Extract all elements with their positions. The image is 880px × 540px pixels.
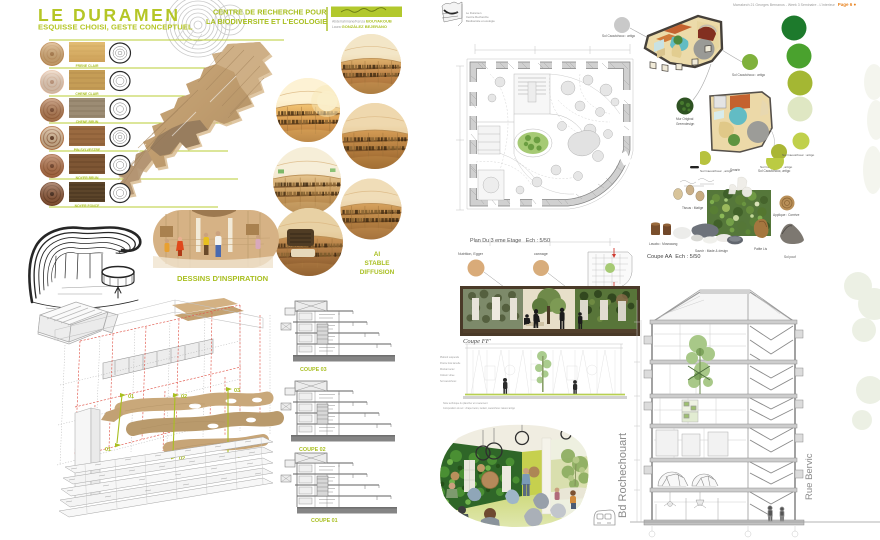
svg-text:Abderrahmane/Kenza BOUYAKOUB: Abderrahmane/Kenza BOUYAKOUB bbox=[332, 19, 392, 24]
svg-text:PIN SYLVESTRE: PIN SYLVESTRE bbox=[74, 148, 101, 152]
svg-text:01: 01 bbox=[128, 394, 134, 400]
svg-text:DESSINS D'INSPIRATION: DESSINS D'INSPIRATION bbox=[177, 274, 268, 283]
svg-text:03: 03 bbox=[234, 388, 240, 394]
svg-text:cannage: cannage bbox=[534, 252, 548, 256]
svg-text:CHENE BRUN: CHENE BRUN bbox=[76, 120, 99, 124]
svg-text:Sol Caoutchouc : artigo: Sol Caoutchouc : artigo bbox=[732, 73, 765, 77]
svg-text:Plan Du 3 eme Etage Ech : 5/: Plan Du 3 eme Etage Ech : 5/50 bbox=[470, 238, 550, 244]
svg-text:LA BIODIVERSITE ET L'ECOLOGIE: LA BIODIVERSITE ET L'ECOLOGIE bbox=[206, 17, 327, 26]
svg-text:Poutre bois lamelle: Poutre bois lamelle bbox=[440, 362, 461, 365]
svg-text:Montant acier: Montant acier bbox=[440, 368, 455, 371]
svg-text:Nutrition, Egger: Nutrition, Egger bbox=[458, 252, 484, 256]
svg-text:STABLE: STABLE bbox=[364, 260, 390, 267]
svg-text:Sol caoutchouc: Sol caoutchouc bbox=[440, 380, 457, 383]
svg-text:Laura GONZÁLEZ BEJERANO: Laura GONZÁLEZ BEJERANO bbox=[332, 24, 387, 29]
svg-text:FRENE CLAIR: FRENE CLAIR bbox=[76, 64, 99, 68]
svg-text:Sol pouf: Sol pouf bbox=[784, 255, 796, 259]
svg-text:Patite Lis: Patite Lis bbox=[754, 247, 768, 251]
svg-text:Composition du sol : chape bet: Composition du sol : chape beton, isolan… bbox=[443, 407, 516, 410]
svg-text:Applique : Corrèze: Applique : Corrèze bbox=[773, 213, 800, 217]
svg-text:Savoir : Made & design: Savoir : Made & design bbox=[695, 249, 728, 253]
svg-text:01: 01 bbox=[105, 447, 111, 453]
svg-text:Sol Caoutchouc, artigo: Sol Caoutchouc, artigo bbox=[758, 169, 790, 173]
svg-text:COUPE 03: COUPE 03 bbox=[300, 367, 327, 373]
svg-text:Note technique du plancher et: Note technique du plancher et revetement bbox=[443, 402, 488, 405]
svg-text:NOYER BRUN: NOYER BRUN bbox=[76, 176, 99, 180]
svg-text:ESQUISSE CHOISI, GESTE CONCEPT: ESQUISSE CHOISI, GESTE CONCEPTUEL bbox=[38, 23, 193, 32]
svg-text:Lavabo : Mosswang: Lavabo : Mosswang bbox=[649, 242, 678, 246]
svg-text:NOYER FONCE: NOYER FONCE bbox=[75, 204, 101, 208]
svg-text:Mur Original: Mur Original bbox=[676, 117, 694, 121]
svg-text:Tissus : Matige: Tissus : Matige bbox=[682, 206, 704, 210]
svg-text:Smarin: Smarin bbox=[730, 168, 740, 172]
svg-text:CENTRE DE RECHERCHE POUR: CENTRE DE RECHERCHE POUR bbox=[213, 8, 327, 17]
svg-text:Sol Caoutchouc : artigo: Sol Caoutchouc : artigo bbox=[602, 34, 635, 38]
svg-text:Greendesign: Greendesign bbox=[676, 122, 694, 126]
svg-text:Biodiversite et ecologie: Biodiversite et ecologie bbox=[466, 19, 495, 23]
svg-text:CHENE CLAIR: CHENE CLAIR bbox=[75, 92, 99, 96]
svg-text:COUPE 01: COUPE 01 bbox=[311, 518, 338, 524]
svg-text:COUPE 02: COUPE 02 bbox=[299, 447, 326, 453]
svg-text:AI: AI bbox=[374, 251, 381, 258]
svg-text:02: 02 bbox=[181, 394, 187, 400]
svg-text:Plafond suspendu: Plafond suspendu bbox=[440, 356, 460, 359]
svg-text:Cloison vitree: Cloison vitree bbox=[440, 374, 455, 377]
svg-text:Sol Caoutchouc : artigo: Sol Caoutchouc : artigo bbox=[782, 153, 814, 157]
svg-text:DIFFUSION: DIFFUSION bbox=[360, 269, 395, 276]
